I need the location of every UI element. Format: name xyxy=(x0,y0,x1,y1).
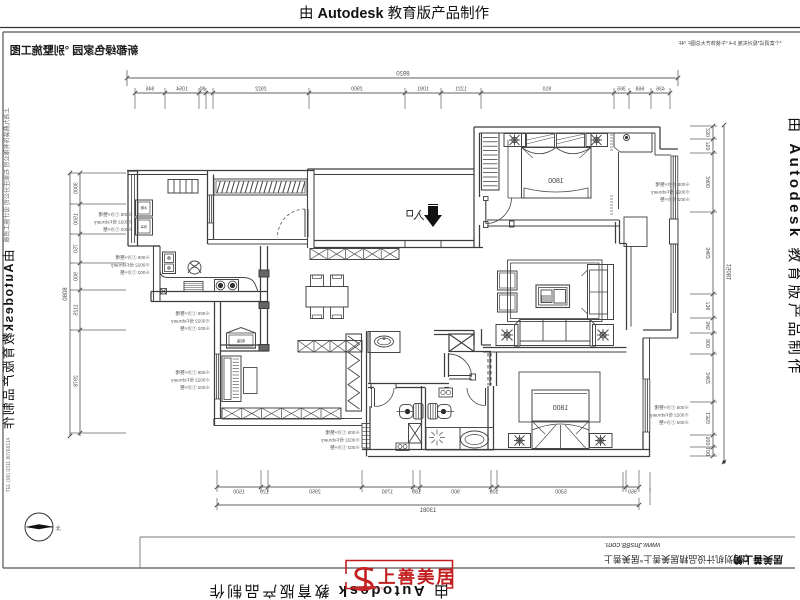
svg-text:TEL (06) 0311 80766114: TEL (06) 0311 80766114 xyxy=(6,437,12,492)
svg-text:365: 365 xyxy=(617,87,626,93)
svg-text:3462: 3462 xyxy=(706,247,712,259)
svg-text:1800: 1800 xyxy=(548,178,564,185)
svg-text:230: 230 xyxy=(706,128,712,137)
svg-text:80: 80 xyxy=(200,87,206,93)
svg-text:1350: 1350 xyxy=(706,412,712,424)
svg-text:※0022 份February: ※0022 份February xyxy=(110,262,150,269)
svg-text:新都绿色家园 °别墅施工图: 新都绿色家园 °别墅施工图 xyxy=(10,43,138,57)
svg-text:100: 100 xyxy=(706,447,712,456)
svg-text:436: 436 xyxy=(656,87,665,93)
svg-text:※0022 份February: ※0022 份February xyxy=(650,189,690,196)
svg-text:※0022 份February: ※0022 份February xyxy=(649,412,689,419)
svg-text:※0022 份February: ※0022 份February xyxy=(320,437,360,444)
svg-text:※005 ①沙×整堵: ※005 ①沙×整堵 xyxy=(175,310,210,317)
svg-text:※002 ①沙×整: ※002 ①沙×整 xyxy=(180,384,210,391)
svg-text:www.Jns88.com.: www.Jns88.com. xyxy=(604,541,660,550)
svg-text:2462: 2462 xyxy=(706,372,712,384)
svg-text:8080: 8080 xyxy=(63,287,69,301)
svg-text:2400: 2400 xyxy=(706,176,712,188)
svg-text:3000: 3000 xyxy=(74,182,80,194)
svg-text:900: 900 xyxy=(74,272,80,281)
svg-text:※005 ①沙×整堵: ※005 ①沙×整堵 xyxy=(655,181,690,188)
svg-text:上海九鼎装饰有限公司 石家庄分公司 设计施工资质: 上海九鼎装饰有限公司 石家庄分公司 设计施工资质 xyxy=(3,107,11,242)
svg-text:由 Autodesk 教育版产品制作: 由 Autodesk 教育版产品制作 xyxy=(786,117,800,377)
svg-text:北: 北 xyxy=(55,525,60,532)
svg-text:1800: 1800 xyxy=(553,405,569,412)
svg-text:居美善上㔢: 居美善上㔢 xyxy=(733,553,783,566)
svg-text:15081: 15081 xyxy=(727,264,733,281)
svg-text:*个案调试*极对实施 9-4 °午装饰齐大总图F °4F: *个案调试*极对实施 9-4 °午装饰齐大总图F °4F xyxy=(678,40,781,47)
svg-text:8920: 8920 xyxy=(396,72,410,78)
svg-text:入: 入 xyxy=(413,209,425,222)
svg-text:冰箱: 冰箱 xyxy=(140,205,147,210)
svg-text:1500: 1500 xyxy=(74,213,80,225)
svg-text:345: 345 xyxy=(706,321,712,330)
svg-text:900: 900 xyxy=(451,490,460,496)
svg-text:736: 736 xyxy=(706,302,712,311)
svg-text:100: 100 xyxy=(490,490,499,496)
svg-text:※005 ①沙×整堵: ※005 ①沙×整堵 xyxy=(98,211,133,218)
svg-text:※002 ①沙×整: ※002 ①沙×整 xyxy=(103,226,133,233)
svg-text:668: 668 xyxy=(636,87,645,93)
svg-text:※005 ①沙×整堵: ※005 ①沙×整堵 xyxy=(115,254,150,261)
svg-text:1125: 1125 xyxy=(74,304,80,315)
svg-text:由 Autodesk 教育版产品制作: 由 Autodesk 教育版产品制作 xyxy=(299,5,489,22)
svg-text:1091: 1091 xyxy=(417,87,429,93)
svg-text:5300: 5300 xyxy=(555,490,567,496)
svg-text:1054: 1054 xyxy=(176,87,188,93)
svg-text:900: 900 xyxy=(706,339,712,348)
svg-text:电箱: 电箱 xyxy=(237,338,245,345)
svg-text:※005 ①沙×整堵: ※005 ①沙×整堵 xyxy=(325,429,360,436)
svg-text:910: 910 xyxy=(543,87,552,93)
svg-text:2978: 2978 xyxy=(74,375,80,387)
svg-text:2900: 2900 xyxy=(351,87,363,93)
svg-text:750: 750 xyxy=(74,244,80,253)
svg-text:※0022 份February: ※0022 份February xyxy=(93,219,133,226)
svg-text:上善美居: 上善美居 xyxy=(378,567,456,587)
svg-text:1221: 1221 xyxy=(455,87,467,93)
svg-text:由Autodesk教育版产品制作: 由Autodesk教育版产品制作 xyxy=(1,250,16,431)
svg-text:13081: 13081 xyxy=(419,508,436,514)
svg-text:※002 ①沙×整: ※002 ①沙×整 xyxy=(659,419,689,426)
svg-text:※005 ①沙×整堵: ※005 ①沙×整堵 xyxy=(654,404,689,411)
svg-text:500: 500 xyxy=(706,437,712,446)
svg-text:※002 ①沙×整: ※002 ①沙×整 xyxy=(180,325,210,332)
svg-text:※005 ①沙×整堵: ※005 ①沙×整堵 xyxy=(175,369,210,376)
svg-text:946: 946 xyxy=(146,87,155,93)
svg-text:2950: 2950 xyxy=(309,490,321,496)
svg-text:※002 ①沙×整: ※002 ①沙×整 xyxy=(660,196,690,203)
svg-text:950: 950 xyxy=(628,490,637,496)
svg-text:1500: 1500 xyxy=(233,490,245,496)
svg-text:2922: 2922 xyxy=(255,87,267,93)
svg-text:消毒: 消毒 xyxy=(140,224,147,229)
svg-text:※0022 份February: ※0022 份February xyxy=(170,318,210,325)
svg-text:1700: 1700 xyxy=(382,490,394,496)
svg-text:(椭)划机计设品精居美善上°居美善上: (椭)划机计设品精居美善上°居美善上 xyxy=(604,554,749,565)
svg-text:※002 ①沙×整: ※002 ①沙×整 xyxy=(330,444,360,451)
svg-text:750: 750 xyxy=(706,142,712,151)
svg-text:※002 ①沙×整: ※002 ①沙×整 xyxy=(120,269,150,276)
svg-text:120: 120 xyxy=(260,490,269,496)
svg-text:※0022 份February: ※0022 份February xyxy=(170,377,210,384)
svg-text:180: 180 xyxy=(412,490,421,496)
svg-text:SHANGSHANMEIJU: SHANGSHANMEIJU xyxy=(354,587,384,591)
